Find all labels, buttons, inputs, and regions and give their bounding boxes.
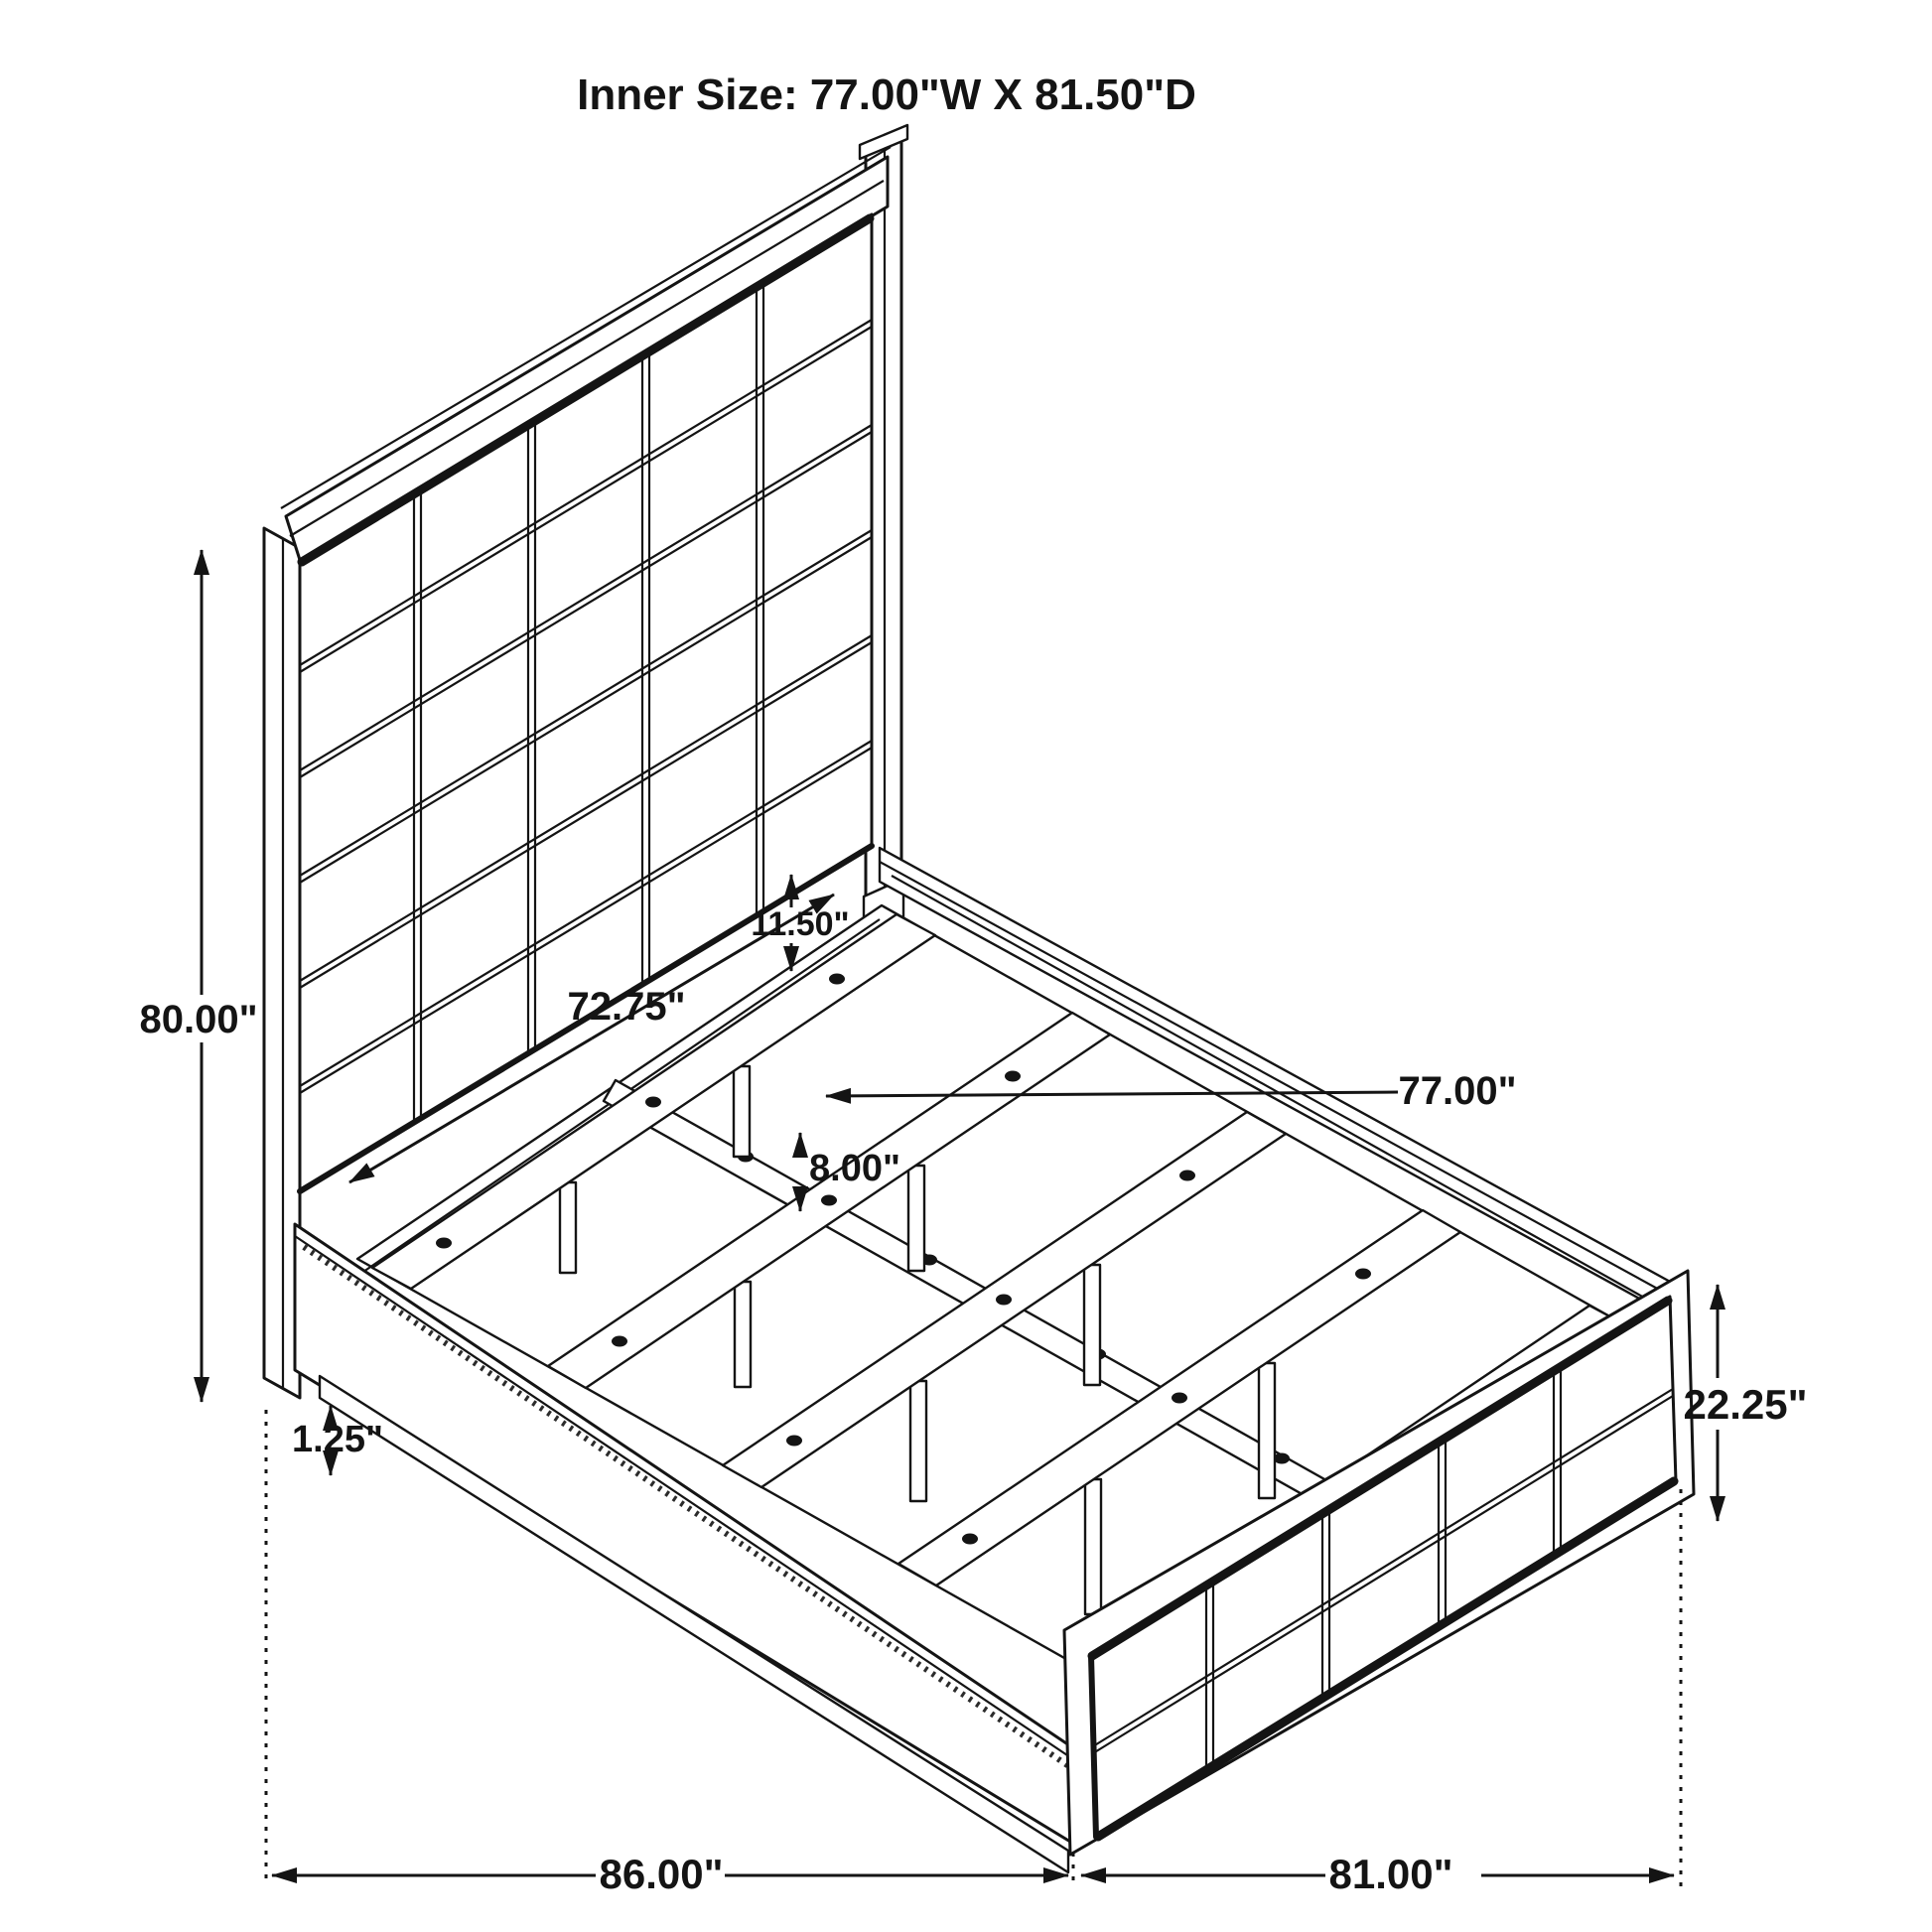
bed-dimension-diagram: 80.00" 11.50" 72.75" 77.00" 8.00" xyxy=(0,0,1932,1932)
dim-headboard-height: 80.00" xyxy=(139,998,257,1041)
dim-overall-length: 86.00" xyxy=(599,1851,723,1897)
dimension-overall-width: 81.00" xyxy=(1081,1851,1674,1897)
dimension-footboard-height: 22.25" xyxy=(1683,1285,1807,1521)
dimension-headboard-height: 80.00" xyxy=(139,550,257,1402)
dim-footboard-height: 22.25" xyxy=(1683,1381,1807,1428)
dim-overall-width: 81.00" xyxy=(1328,1851,1452,1897)
dim-base-clearance: 1.25" xyxy=(292,1419,383,1460)
dim-inner-width: 77.00" xyxy=(1398,1069,1516,1113)
dim-headboard-width: 72.75" xyxy=(567,985,685,1029)
diagram-canvas: 80.00" 11.50" 72.75" 77.00" 8.00" xyxy=(0,0,1932,1932)
dimension-overall-length: 86.00" xyxy=(272,1851,1068,1897)
dim-rail-gap: 11.50" xyxy=(751,905,849,943)
page-title: Inner Size: 77.00"W X 81.50"D xyxy=(577,70,1196,119)
dim-slat-height: 8.00" xyxy=(809,1148,900,1189)
